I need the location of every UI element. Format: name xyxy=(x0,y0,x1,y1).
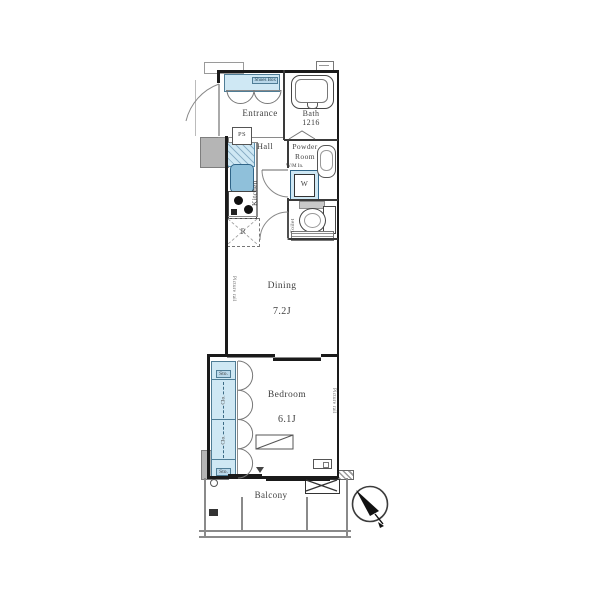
shoes-cabinet-line xyxy=(226,90,281,91)
wall-powder-top xyxy=(284,139,338,141)
room-label-toilet: Toilet xyxy=(290,203,296,233)
room-label-bath: Bath 1216 xyxy=(287,109,335,127)
wall-hall-powder-lower xyxy=(287,198,289,238)
washing-machine: W xyxy=(294,174,315,197)
ps-label: PS xyxy=(233,131,251,138)
room-label-hall: Hall xyxy=(243,142,287,152)
balcony-drain xyxy=(210,479,218,487)
room-label-dining: Dining xyxy=(226,281,338,292)
refrigerator-space: R xyxy=(227,218,260,247)
closet-cell-storage-top: Sto. xyxy=(212,362,235,380)
wall-left-step xyxy=(207,354,227,357)
compass-icon xyxy=(353,487,388,529)
washer-label: W xyxy=(295,180,314,189)
fridge-label: R xyxy=(228,227,259,236)
bath-name: Bath xyxy=(287,109,335,118)
shoes-box-label: Shoes Box xyxy=(252,77,278,84)
wall-left-entrance xyxy=(217,70,220,83)
closet-label: Clo. xyxy=(220,434,226,445)
toilet-bowl xyxy=(299,208,326,233)
washer-pan: W xyxy=(290,170,319,201)
picture-rail-note-bedroom: Picture rail xyxy=(331,388,336,432)
room-label-powder: Powder Room xyxy=(283,142,327,162)
closet-cell-clo-2: Clo. xyxy=(212,420,235,460)
wall-left-mid xyxy=(225,136,228,356)
room-label-bedroom: Bedroom xyxy=(231,390,343,401)
balcony-wall-left xyxy=(204,478,206,537)
balcony-post-2 xyxy=(306,497,308,531)
balcony-rail-inner xyxy=(199,530,351,532)
closet-label: Sto. xyxy=(216,370,231,378)
balcony-hose-bib xyxy=(209,509,218,516)
wall-entrance-bath xyxy=(283,70,285,140)
bedroom-board xyxy=(256,435,293,449)
picture-rail-note-dining: Picture rail xyxy=(231,276,236,320)
bath-size: 1216 xyxy=(287,118,335,127)
ceiling-marker-triangle xyxy=(256,467,264,473)
kitchen-bottom-line xyxy=(227,216,257,217)
wall-toilet-dining xyxy=(288,238,338,240)
closet-label: Clo. xyxy=(220,394,226,405)
floor-plan: Shoes Box PS R W Sto. xyxy=(0,0,605,606)
sliding-door-panel-1 xyxy=(227,354,275,357)
room-label-balcony: Balcony xyxy=(215,490,327,500)
room-size-bedroom: 6.1J xyxy=(231,414,343,426)
powder-door-arc xyxy=(262,170,288,197)
wall-partition-right xyxy=(321,354,338,357)
bath-door xyxy=(289,131,315,139)
room-label-kitchen: Kitchen xyxy=(250,162,259,206)
window-sash-right xyxy=(266,477,330,481)
room-size-dining: 7.2J xyxy=(226,306,338,318)
wall-top xyxy=(218,70,339,73)
window-sash-left xyxy=(228,474,262,478)
washer-note: W/M In. xyxy=(286,164,312,170)
wall-left-bedroom xyxy=(207,355,210,478)
wall-powder-toilet xyxy=(288,199,338,201)
sliding-door-panel-2 xyxy=(273,358,321,361)
bathtub xyxy=(291,75,334,109)
balcony-wall-right xyxy=(346,478,348,537)
neighbour-boundary-line xyxy=(195,80,196,136)
powder-line2: Room xyxy=(283,152,327,162)
toilet-louver xyxy=(291,231,334,241)
wall-remote-box xyxy=(313,459,332,469)
balcony-post-1 xyxy=(241,497,243,531)
balcony-rail-outer xyxy=(199,536,351,538)
shoes-cabinet-doors xyxy=(227,90,281,104)
powder-line1: Powder xyxy=(283,142,327,152)
dining-door-arc xyxy=(260,212,288,240)
